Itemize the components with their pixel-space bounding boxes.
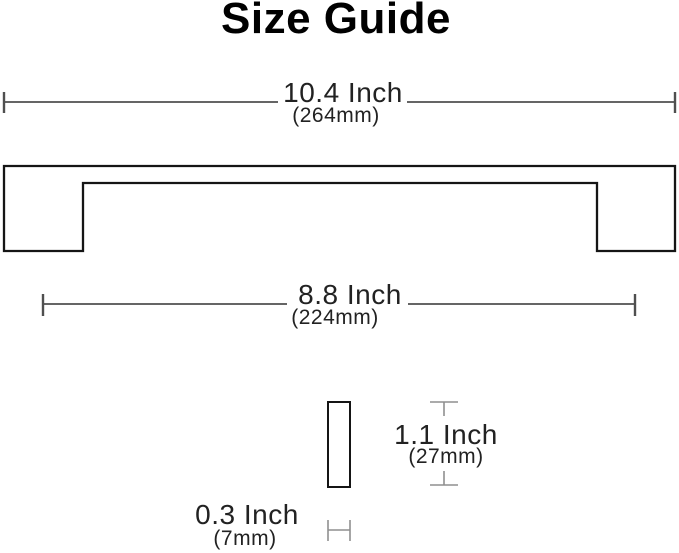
hole-spacing-inch-label: 8.8 Inch [298,281,402,309]
thickness-indicator-marks [328,520,350,541]
thickness-inch-label: 0.3 Inch [195,501,299,529]
hole-spacing-mm-label: (224mm) [291,307,379,328]
handle-cross-section-rect [328,402,350,487]
size-guide-page: Size Guide [0,0,679,553]
overall-length-inch-label: 10.4 Inch [283,79,403,107]
handle-profile-outline [4,166,675,251]
thickness-mm-label: (7mm) [213,528,276,549]
height-mm-label: (27mm) [408,446,483,467]
overall-length-mm-label: (264mm) [292,105,380,126]
